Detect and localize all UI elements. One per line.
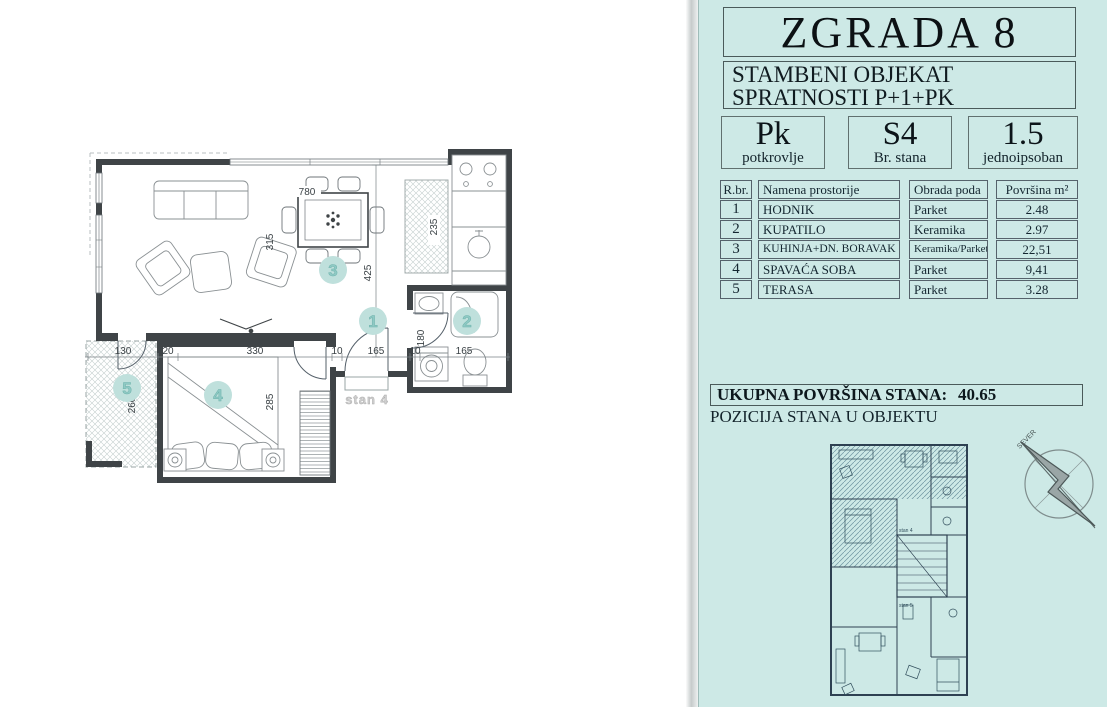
mini-position-plan: stan 4 stan 5 — [819, 437, 979, 702]
total-area-box: UKUPNA POVRŠINA STANA: 40.65 — [710, 384, 1083, 406]
coffee-table — [190, 251, 233, 294]
armchair — [134, 239, 192, 297]
header-name: Namena prostorije — [758, 180, 900, 199]
bathroom-fixtures — [415, 292, 498, 386]
row-num: 4 — [720, 260, 752, 279]
mini-label-top: stan 4 — [899, 528, 913, 534]
row-floor: Keramika/Parket — [909, 240, 988, 259]
header-floor: Obrada poda — [909, 180, 988, 199]
compass-rose: SEVER — [1007, 430, 1104, 532]
floor-label: potkrovlje — [722, 151, 824, 166]
info-panel: ZGRADA 8 STAMBENI OBJEKAT SPRATNOSTI P+1… — [698, 0, 1107, 707]
kitchen-area — [405, 155, 506, 285]
floor-box: Pk potkrovlje — [721, 116, 825, 169]
entry-step — [345, 377, 388, 390]
row-num: 5 — [720, 280, 752, 299]
dim-bedroom-w: 330 — [247, 346, 264, 357]
table-row: 2 KUPATILO Keramika 2.97 — [699, 220, 1107, 239]
row-name: KUPATILO — [758, 220, 900, 239]
compass-needle — [1021, 442, 1095, 528]
table-row: 3 KUHINJA+DN. BORAVAK Keramika/Parket 22… — [699, 240, 1107, 259]
position-label: POZICIJA STANA U OBJEKTU — [710, 407, 938, 427]
wardrobe — [300, 391, 330, 475]
curtain-symbol — [220, 319, 272, 333]
total-area-label: UKUPNA POVRŠINA STANA: — [717, 385, 947, 405]
row-area: 9,41 — [996, 260, 1078, 279]
svg-text:2: 2 — [462, 312, 471, 331]
room-count-box: 1.5 jednoipsoban — [968, 116, 1078, 169]
header-num: R.br. — [720, 180, 752, 199]
table-header-row: R.br. Namena prostorije Obrada poda Povr… — [699, 180, 1107, 199]
badge-living: 3 — [319, 256, 347, 284]
sofa — [154, 181, 248, 219]
row-floor: Keramika — [909, 220, 988, 239]
table-row: 4 SPAVAĆA SOBA Parket 9,41 — [699, 260, 1107, 279]
mini-label-bottom: stan 5 — [899, 603, 913, 609]
unit-number-box: S4 Br. stana — [848, 116, 952, 169]
building-subtitle-box: STAMBENI OBJEKAT SPRATNOSTI P+1+PK — [723, 61, 1076, 109]
badge-bath: 2 — [453, 307, 481, 335]
table-row: 5 TERASA Parket 3.28 — [699, 280, 1107, 299]
row-name: SPAVAĆA SOBA — [758, 260, 900, 279]
svg-text:5: 5 — [122, 379, 131, 398]
dim-living: 315 — [265, 233, 276, 250]
row-area: 2.48 — [996, 200, 1078, 219]
bedroom-furniture — [164, 357, 330, 475]
row-num: 3 — [720, 240, 752, 259]
badge-terrace: 5 — [113, 374, 141, 402]
page-fold-edge — [686, 0, 698, 707]
row-area: 2.97 — [996, 220, 1078, 239]
dim-gap-a: 10 — [331, 346, 343, 357]
dim-pantry: 235 — [429, 218, 440, 235]
badge-bedroom: 4 — [204, 381, 232, 409]
svg-text:3: 3 — [328, 261, 337, 280]
total-area-value: 40.65 — [958, 385, 996, 405]
dim-bath-h: 180 — [416, 329, 427, 346]
svg-text:4: 4 — [213, 386, 223, 405]
header-area-unit: m² — [1054, 182, 1068, 197]
row-num: 1 — [720, 200, 752, 219]
row-num: 2 — [720, 220, 752, 239]
svg-text:1: 1 — [368, 312, 377, 331]
room-count: 1.5 — [969, 117, 1077, 151]
rooms-table: R.br. Namena prostorije Obrada poda Povr… — [699, 180, 1107, 300]
terrace-area — [86, 341, 156, 467]
row-name: TERASA — [758, 280, 900, 299]
badge-hall: 1 — [359, 307, 387, 335]
subtitle-line2: SPRATNOSTI P+1+PK — [732, 86, 1067, 109]
subtitle-line1: STAMBENI OBJEKAT — [732, 63, 1067, 86]
unit-label: stan 4 — [345, 392, 389, 407]
floorplan-sheet: 780 235 315 425 130 20 330 10 165 10 165… — [0, 0, 1107, 707]
header-area-text: Površina — [1006, 182, 1052, 197]
header-area: Površina m² — [996, 180, 1078, 199]
dim-bath-w: 165 — [456, 346, 473, 357]
main-floorplan-drawing: 780 235 315 425 130 20 330 10 165 10 165… — [80, 145, 520, 495]
room-count-label: jednoipsoban — [969, 151, 1077, 166]
dim-gap-b: 10 — [409, 346, 421, 357]
dim-entry-w: 165 — [368, 346, 385, 357]
table-row: 1 HODNIK Parket 2.48 — [699, 200, 1107, 219]
row-area: 22,51 — [996, 240, 1078, 259]
floor-code: Pk — [722, 117, 824, 151]
row-area: 3.28 — [996, 280, 1078, 299]
dim-bedroom-h: 285 — [265, 393, 276, 410]
dim-top-width: 780 — [299, 187, 316, 198]
building-title-box: ZGRADA 8 — [723, 7, 1076, 57]
dim-terrace-w: 130 — [115, 346, 132, 357]
row-floor: Parket — [909, 200, 988, 219]
row-floor: Parket — [909, 260, 988, 279]
unit-number-label: Br. stana — [849, 151, 951, 166]
mini-stairs — [897, 535, 947, 597]
row-floor: Parket — [909, 280, 988, 299]
building-title: ZGRADA 8 — [781, 7, 1019, 58]
row-name: KUHINJA+DN. BORAVAK — [758, 240, 900, 259]
dim-hall: 425 — [363, 264, 374, 281]
row-name: HODNIK — [758, 200, 900, 219]
dim-wall: 20 — [162, 346, 174, 357]
unit-number: S4 — [849, 117, 951, 151]
